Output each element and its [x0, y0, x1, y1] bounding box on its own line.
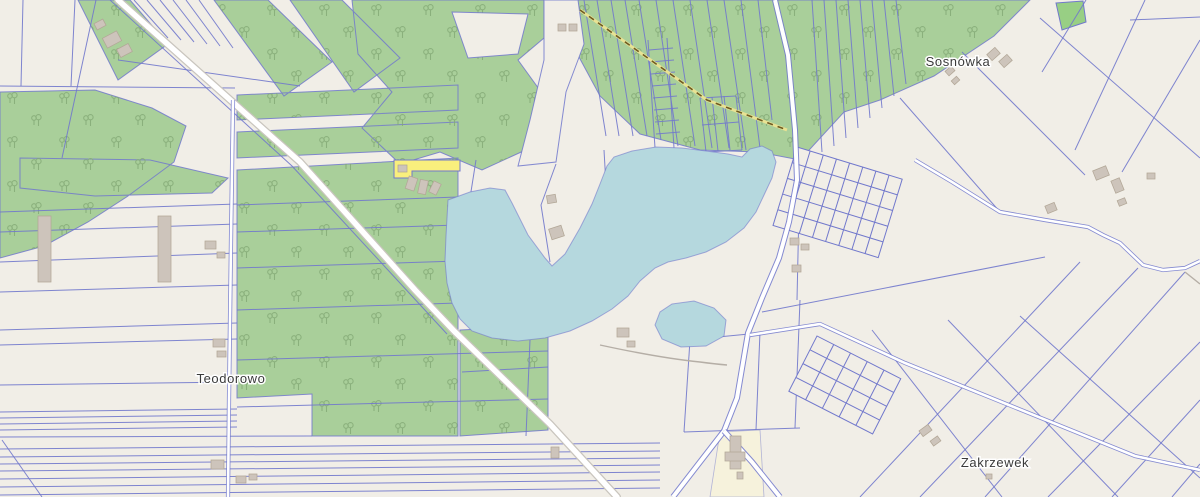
place-label-teodorowo: Teodorowo	[197, 371, 266, 386]
building	[205, 241, 216, 249]
building	[211, 460, 224, 469]
building	[217, 351, 226, 357]
map-canvas[interactable]: Sosnówka Teodorowo Zakrzewek	[0, 0, 1200, 497]
building	[1147, 173, 1155, 179]
building	[627, 341, 635, 347]
building	[558, 24, 566, 31]
building	[398, 165, 407, 172]
building	[790, 238, 799, 245]
map-viewport[interactable]: Sosnówka Teodorowo Zakrzewek	[0, 0, 1200, 497]
building	[217, 252, 225, 258]
building	[213, 339, 225, 347]
building	[986, 474, 992, 479]
building	[737, 472, 743, 479]
building	[617, 328, 629, 337]
building	[158, 216, 171, 282]
building	[236, 476, 246, 483]
place-label-zakrzewek: Zakrzewek	[961, 455, 1029, 470]
building	[38, 216, 51, 282]
building	[569, 24, 577, 31]
place-label-sosnowka: Sosnówka	[926, 54, 991, 69]
building	[551, 447, 559, 458]
building	[249, 474, 257, 480]
building	[546, 194, 556, 203]
building	[801, 244, 809, 250]
building	[792, 265, 801, 272]
building	[725, 452, 745, 461]
